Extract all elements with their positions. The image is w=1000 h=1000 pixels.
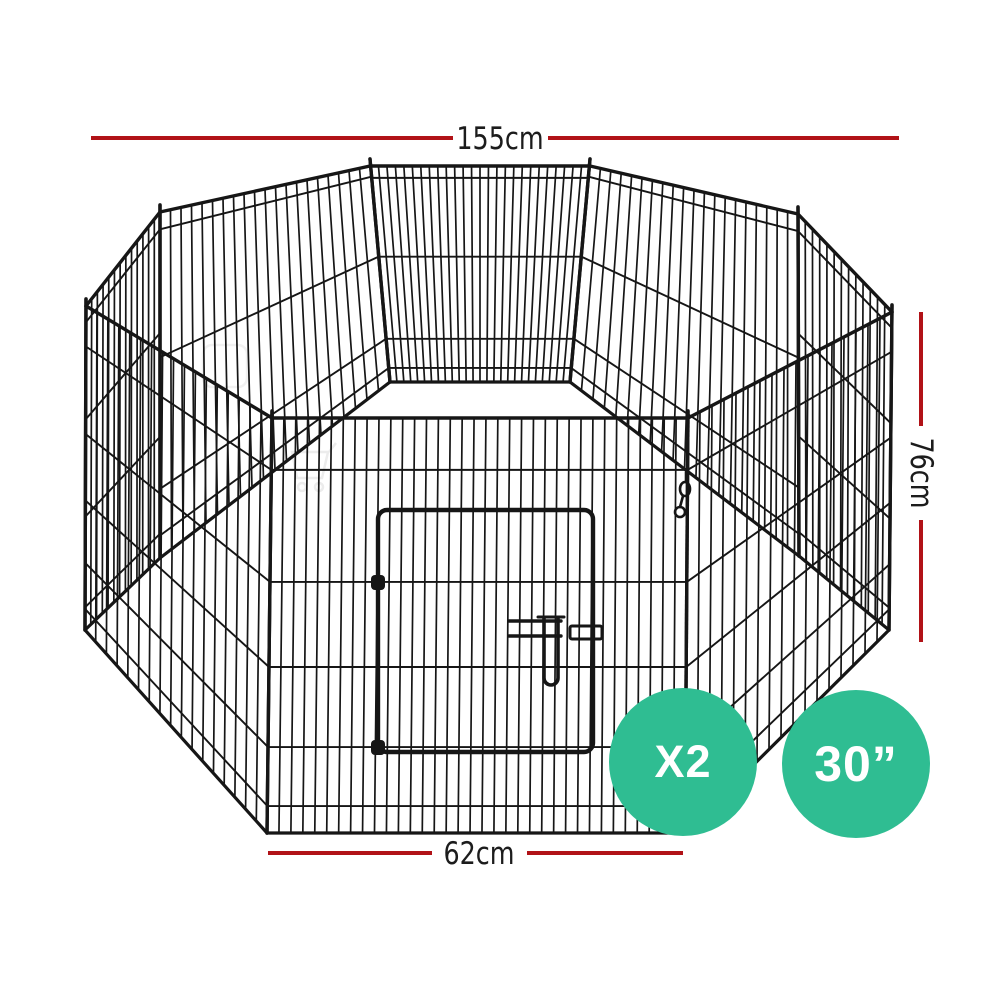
- bottom-dimension-label: 62cm: [443, 836, 514, 872]
- top-dimension-line-left: [91, 136, 453, 140]
- right-dimension-label: 76cm: [903, 437, 939, 508]
- bottom-dimension-line-right: [527, 851, 683, 855]
- right-dimension-line-bottom: [919, 520, 923, 642]
- panel-size-badge-label: 30”: [814, 735, 898, 793]
- top-dimension-line-right: [548, 136, 899, 140]
- bottom-dimension-line-left: [268, 851, 432, 855]
- quantity-badge: X2: [609, 688, 757, 836]
- quantity-badge-label: X2: [654, 736, 711, 788]
- right-dimension-line-top: [919, 312, 923, 426]
- panel-size-badge: 30”: [782, 690, 930, 838]
- playpen-product-image: 155cm 76cm 62cm X2 30”: [0, 0, 1000, 1000]
- top-dimension-label: 155cm: [456, 121, 543, 157]
